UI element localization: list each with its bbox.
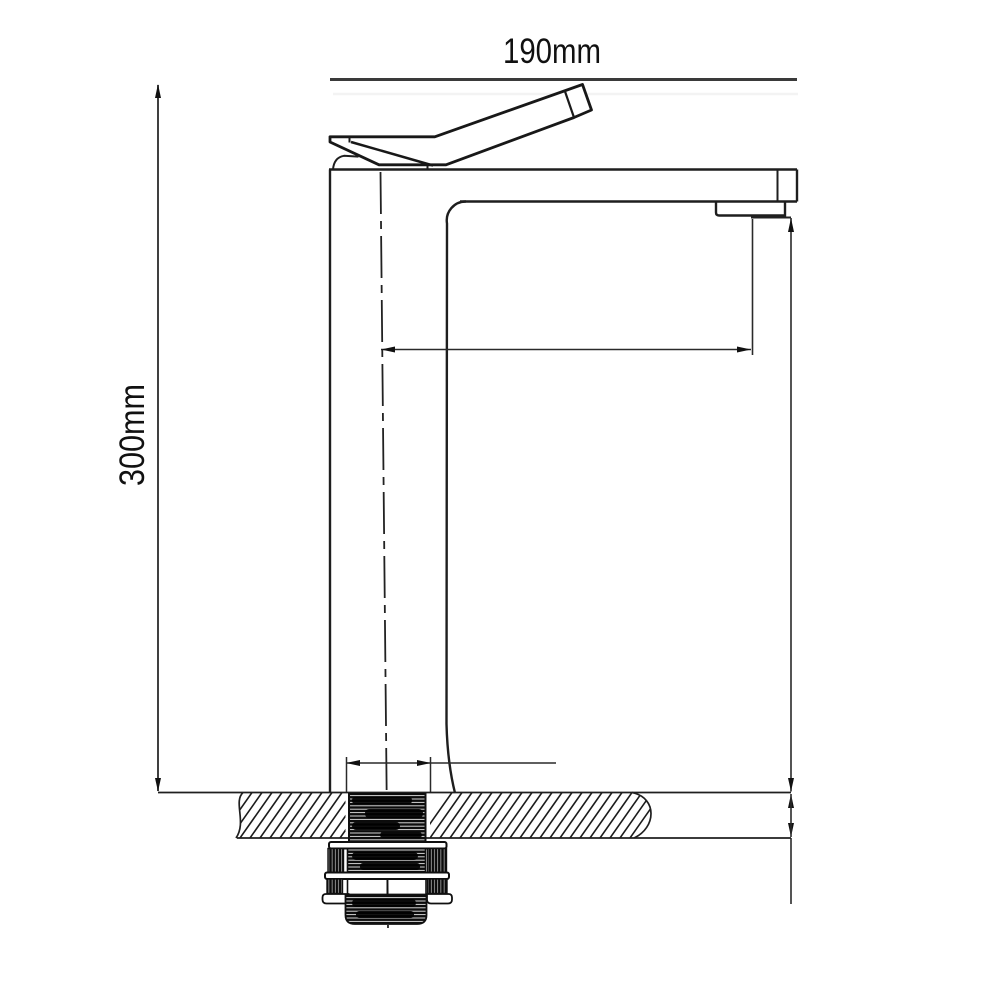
svg-text:190mm: 190mm [503,32,601,71]
svg-text:300mm: 300mm [113,384,152,486]
